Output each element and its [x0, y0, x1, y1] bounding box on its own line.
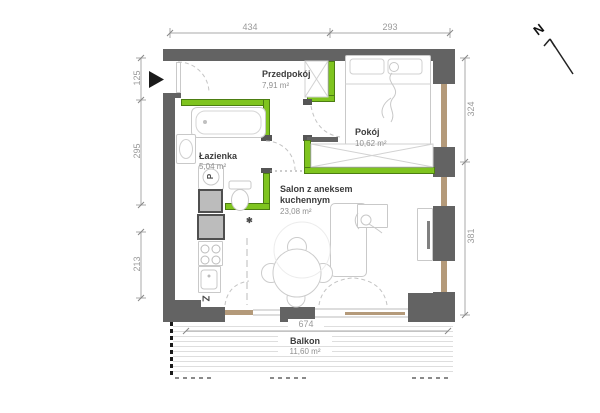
room-label-lazienka: Łazienka: [199, 151, 237, 161]
dim-left-middle: 295: [132, 140, 142, 162]
dim-top-right: 293: [370, 22, 410, 32]
stove-burners: [201, 245, 220, 264]
hall-wardrobe: [305, 61, 328, 97]
dim-right-lower: 381: [466, 225, 476, 247]
bathtub-inner: [196, 111, 261, 134]
person-on-bed: [382, 63, 398, 123]
dim-right-upper: 324: [466, 98, 476, 120]
dim-top-left: 434: [230, 22, 270, 32]
room-label-przedpokoj: Przedpokój: [262, 69, 311, 79]
room-area-balkon: 11,60 m²: [278, 347, 332, 356]
north-arrow-icon: [544, 39, 573, 74]
kitchen-sink-basin: [201, 270, 217, 289]
toilet: [229, 181, 251, 211]
footnote-asterisk: ✱: [246, 216, 253, 225]
room-label-balkon: Balkon: [278, 336, 332, 346]
glazing-lines: [253, 309, 408, 317]
room-area-pokoj: 10,62 m²: [355, 139, 387, 148]
floor-plan: Przedpokój 7,91 m² Pokój 10,62 m² Łazien…: [0, 0, 600, 413]
room-area-przedpokoj: 7,91 m²: [262, 81, 289, 90]
dim-left-lower: 213: [132, 253, 142, 275]
bed-pillows: [345, 59, 431, 84]
kitchen-unit-label: Z: [200, 295, 211, 301]
person-at-desk: [355, 213, 382, 233]
dim-left-upper: 125: [132, 67, 142, 89]
room-area-lazienka: 5,04 m²: [199, 162, 226, 171]
sink-bowl: [180, 140, 193, 159]
room-area-salon: 23,08 m²: [280, 207, 312, 216]
entrance-arrow-icon: [149, 71, 164, 88]
washing-machine-label: P: [206, 174, 215, 179]
room-label-pokoj: Pokój: [355, 127, 380, 137]
room-label-salon-line1: Salon z aneksem: [280, 184, 353, 194]
dim-balcony-width: 674: [288, 319, 324, 329]
room-label-salon-line2: kuchennym: [280, 195, 330, 205]
